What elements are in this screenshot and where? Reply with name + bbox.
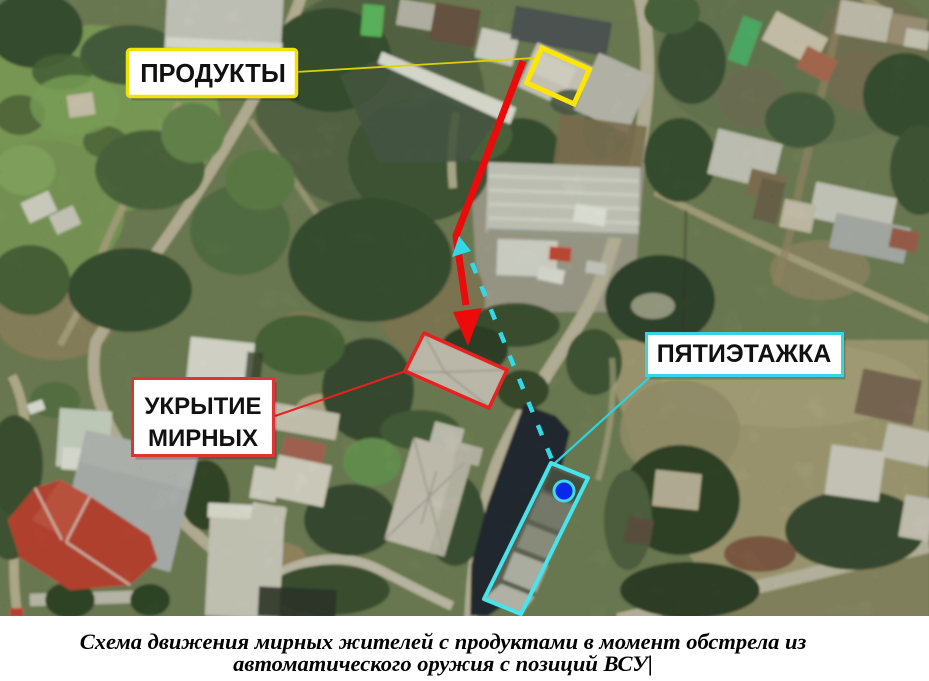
svg-text:ПЯТИЭТАЖКА: ПЯТИЭТАЖКА [657,340,832,368]
svg-text:УКРЫТИЕ: УКРЫТИЕ [145,393,262,420]
svg-text:МИРНЫХ: МИРНЫХ [148,425,258,452]
svg-text:автоматического оружия с позиц: автоматического оружия с позиций ВСУ| [233,651,653,676]
svg-text:ПРОДУКТЫ: ПРОДУКТЫ [140,60,286,88]
